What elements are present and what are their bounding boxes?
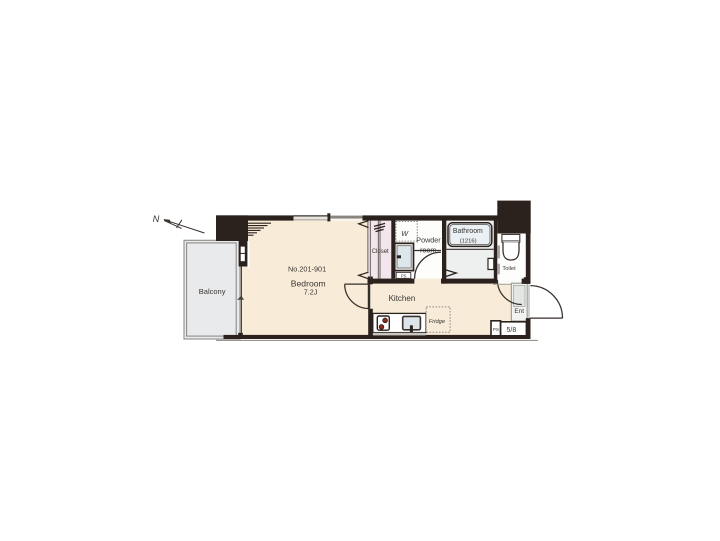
svg-text:Ent: Ent [514,308,524,315]
svg-text:7.2J: 7.2J [304,288,318,297]
svg-text:(1216): (1216) [460,239,477,245]
svg-text:PS: PS [401,274,407,279]
svg-text:Bathroom: Bathroom [453,228,483,235]
svg-text:Fridge: Fridge [429,319,446,325]
svg-text:N: N [153,214,160,224]
svg-text:PS: PS [493,327,499,333]
svg-text:Closet: Closet [372,249,389,255]
svg-text:Powder: Powder [416,235,441,244]
svg-text:5/8: 5/8 [507,327,517,334]
svg-text:No.201-901: No.201-901 [288,264,326,273]
svg-text:Balcony: Balcony [199,287,226,296]
svg-text:Toilet: Toilet [502,266,516,272]
svg-text:Kitchen: Kitchen [389,294,416,303]
svg-text:room: room [420,246,436,255]
